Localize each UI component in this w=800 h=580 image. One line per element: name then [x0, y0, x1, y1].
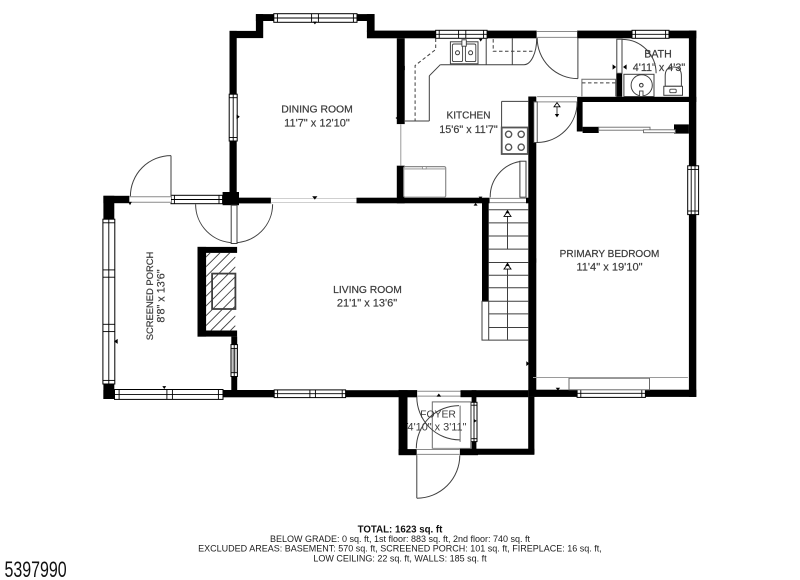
- svg-text:11'4" x 19'10": 11'4" x 19'10": [576, 262, 642, 274]
- svg-text:4'10" x 3'11": 4'10" x 3'11": [408, 422, 467, 434]
- svg-text:BELOW GRADE: 0 sq. ft, 1st flo: BELOW GRADE: 0 sq. ft, 1st floor: 883 sq…: [270, 534, 531, 544]
- svg-text:FOYER: FOYER: [420, 410, 456, 421]
- svg-text:8'8" x 13'6": 8'8" x 13'6": [156, 269, 168, 322]
- svg-text:EXCLUDED AREAS: BASEMENT: 570: EXCLUDED AREAS: BASEMENT: 570 sq. ft, SC…: [198, 544, 602, 554]
- svg-text:BATH: BATH: [644, 49, 671, 61]
- svg-text:DINING ROOM: DINING ROOM: [281, 105, 353, 116]
- svg-text:LOW CEILING: 22 sq. ft, WALLS:: LOW CEILING: 22 sq. ft, WALLS: 185 sq. f…: [313, 553, 487, 563]
- svg-text:LIVING ROOM: LIVING ROOM: [333, 285, 402, 296]
- svg-text:11'7" x 12'10": 11'7" x 12'10": [284, 117, 350, 129]
- svg-text:PRIMARY BEDROOM: PRIMARY BEDROOM: [560, 249, 660, 260]
- svg-text:KITCHEN: KITCHEN: [447, 111, 491, 122]
- svg-text:15'6" x 11'7": 15'6" x 11'7": [439, 124, 498, 136]
- svg-text:4'11" x 4'3": 4'11" x 4'3": [633, 62, 686, 74]
- svg-text:21'1" x 13'6": 21'1" x 13'6": [337, 298, 397, 310]
- svg-text:5397990: 5397990: [5, 557, 67, 580]
- svg-text:SCREENED PORCH: SCREENED PORCH: [144, 252, 155, 341]
